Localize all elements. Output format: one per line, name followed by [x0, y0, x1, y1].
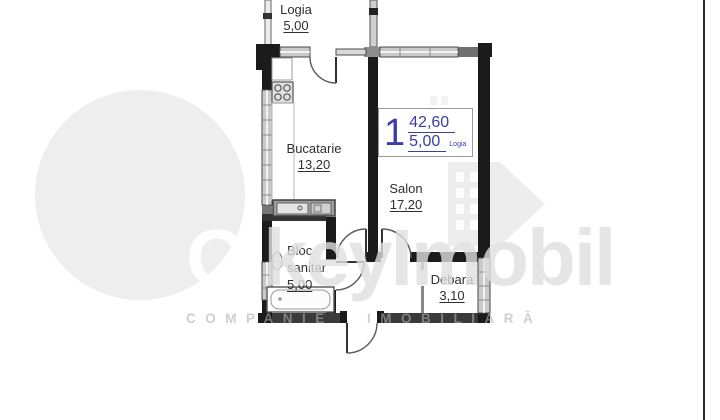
apartment-index: 1 [384, 114, 405, 152]
room-label-bloc-sanitar: Bloc sanitar 5,00 [287, 242, 337, 293]
salon-door-arc [382, 229, 411, 258]
salon-window [380, 47, 458, 57]
floor-plan-drawing [0, 0, 720, 420]
secondary-area-value: 5,00 [408, 133, 446, 152]
stove-symbol [272, 82, 293, 103]
bathroom-door-arc [336, 262, 364, 290]
room-area: 5,00 [266, 18, 326, 34]
logia-window [280, 47, 310, 57]
kitchen-window [262, 90, 272, 205]
washbasin-symbol [272, 252, 282, 270]
top-thin-window [336, 49, 366, 55]
room-name: Debara [423, 272, 481, 288]
room-area: 3,10 [423, 288, 481, 304]
kitchen-cabinet-symbol [272, 58, 292, 80]
apartment-total-label: 1 42,60 5,00 Logia [378, 108, 473, 157]
room-label-salon: Salon 17,20 [378, 181, 434, 213]
room-name: Logia [266, 2, 326, 18]
kitchen-door-arc [337, 229, 366, 258]
page-edge-line [703, 0, 705, 420]
room-name: Bucatarie [278, 141, 350, 157]
room-area: 5,00 [287, 276, 337, 293]
total-area-value: 42,60 [408, 114, 455, 133]
room-label-debara: Debara 3,10 [423, 272, 481, 304]
sink-counter-symbol [273, 200, 335, 216]
room-area: 17,20 [378, 197, 434, 213]
room-label-logia: Logia 5,00 [266, 2, 326, 34]
floor-plan-page: Logia 5,00 Bucatarie 13,20 Salon 17,20 B… [0, 0, 720, 420]
area-fraction: 42,60 5,00 Logia [408, 114, 466, 152]
balcony-door-arc [310, 57, 336, 83]
entrance-door-arc [347, 323, 377, 353]
room-label-bucatarie: Bucatarie 13,20 [278, 141, 350, 173]
room-name: Bloc sanitar [287, 242, 337, 276]
room-area: 13,20 [278, 157, 350, 173]
secondary-area-suffix: Logia [449, 141, 466, 149]
room-name: Salon [378, 181, 434, 197]
